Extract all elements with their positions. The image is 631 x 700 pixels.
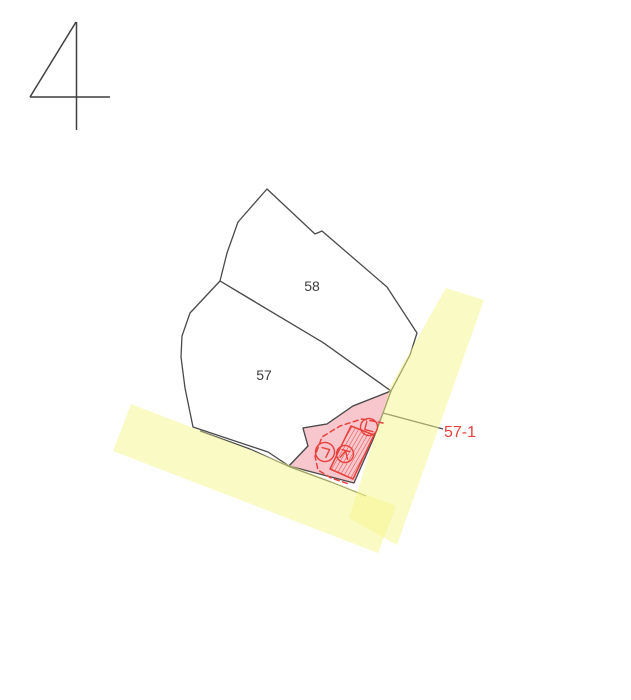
parcel-58-label: 58 <box>304 278 320 294</box>
parcel-57-label: 57 <box>256 367 272 383</box>
cadastral-figure-page: 585757-1 <box>0 0 631 700</box>
cadastral-map: 585757-1 <box>0 0 631 700</box>
callout-label-57-1: 57-1 <box>444 424 476 441</box>
figure-number <box>30 22 110 130</box>
figure-number-stroke <box>30 22 76 97</box>
